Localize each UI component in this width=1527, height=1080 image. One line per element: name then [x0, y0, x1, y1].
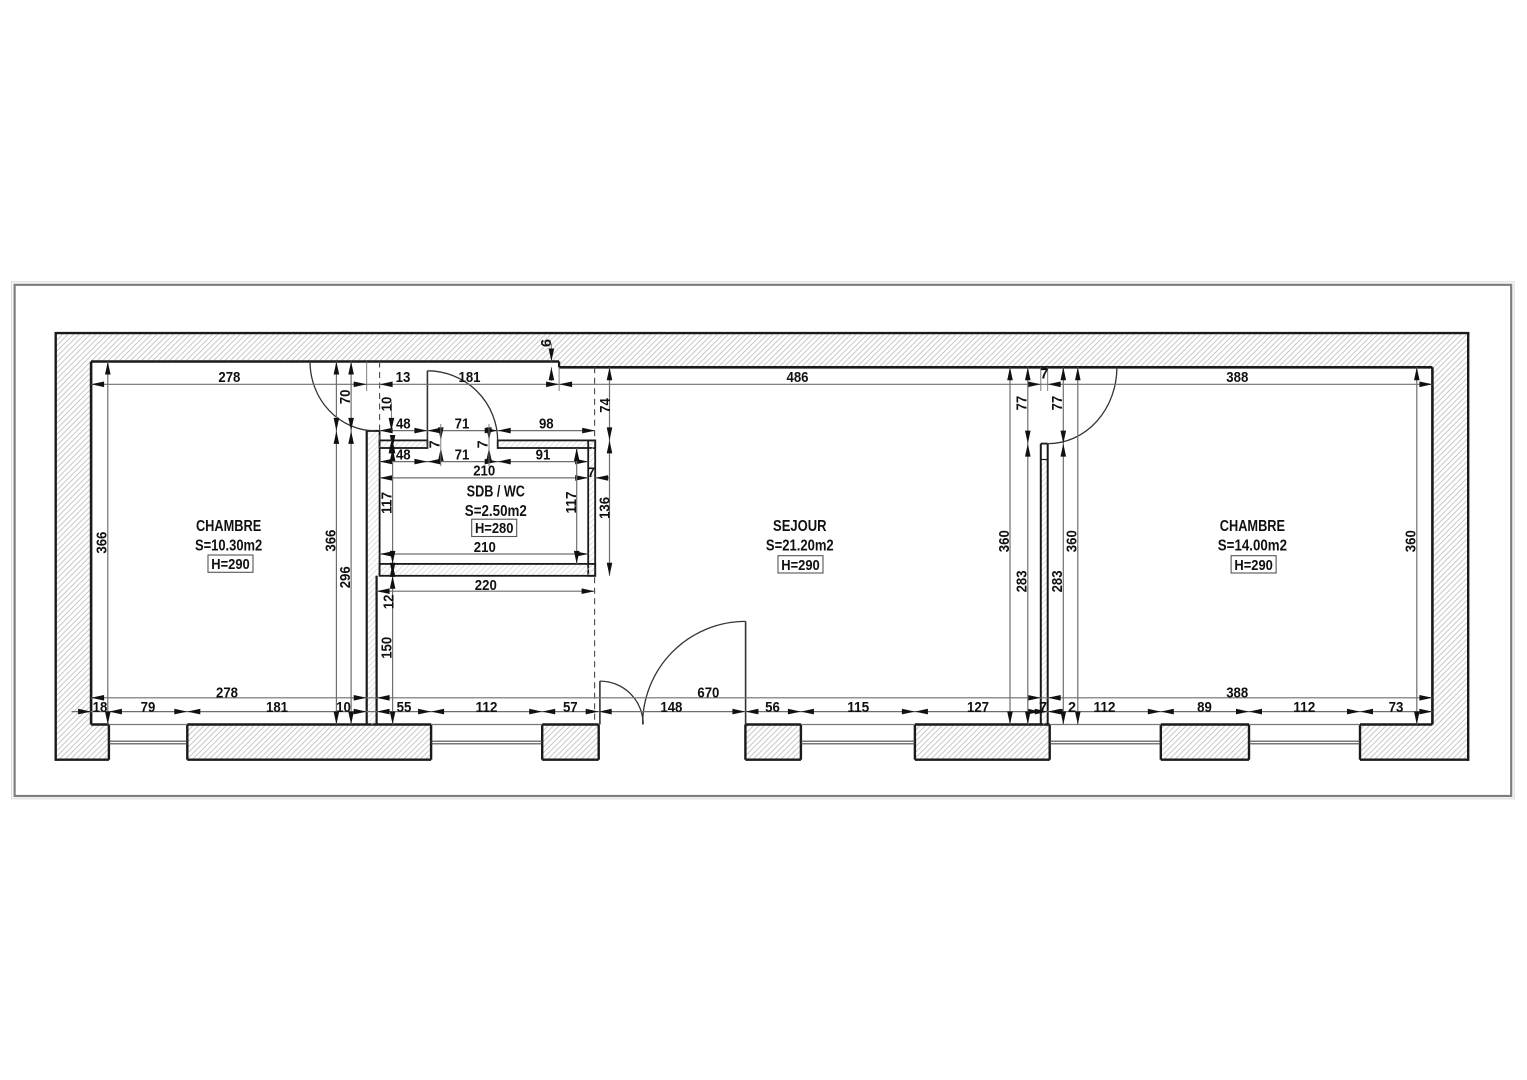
svg-text:SEJOUR: SEJOUR [773, 518, 827, 535]
svg-text:H=280: H=280 [475, 520, 514, 537]
svg-text:7: 7 [588, 465, 596, 480]
svg-text:150: 150 [380, 637, 396, 659]
svg-text:283: 283 [1014, 570, 1030, 592]
svg-text:S=14.00m2: S=14.00m2 [1218, 537, 1287, 554]
svg-text:79: 79 [141, 700, 156, 716]
svg-text:210: 210 [474, 540, 496, 556]
svg-text:7: 7 [428, 440, 444, 448]
svg-text:89: 89 [1197, 700, 1212, 716]
svg-text:98: 98 [539, 416, 554, 432]
svg-text:S=21.20m2: S=21.20m2 [766, 537, 834, 554]
svg-text:H=290: H=290 [781, 557, 820, 574]
svg-text:486: 486 [787, 370, 809, 386]
svg-text:360: 360 [1404, 530, 1420, 552]
svg-text:2: 2 [1068, 700, 1076, 716]
svg-text:H=290: H=290 [211, 556, 250, 573]
svg-text:H=290: H=290 [1234, 557, 1273, 574]
svg-text:7: 7 [1040, 367, 1048, 383]
svg-text:181: 181 [459, 370, 481, 386]
svg-text:388: 388 [1226, 685, 1248, 701]
svg-text:278: 278 [216, 685, 238, 701]
svg-text:210: 210 [473, 464, 495, 480]
svg-text:48: 48 [396, 416, 411, 432]
svg-text:360: 360 [1065, 530, 1081, 552]
svg-text:SDB / WC: SDB / WC [467, 483, 525, 500]
svg-text:7: 7 [476, 440, 492, 448]
svg-text:77: 77 [1015, 396, 1031, 411]
svg-text:74: 74 [598, 398, 614, 413]
svg-text:91: 91 [536, 448, 551, 464]
svg-text:278: 278 [218, 370, 240, 386]
svg-text:12: 12 [382, 594, 398, 609]
svg-text:220: 220 [475, 578, 497, 594]
svg-text:CHAMBRE: CHAMBRE [196, 518, 261, 535]
svg-text:71: 71 [455, 448, 470, 464]
svg-text:S=10.30m2: S=10.30m2 [195, 537, 262, 554]
svg-text:112: 112 [1293, 700, 1315, 716]
svg-text:670: 670 [697, 685, 719, 701]
svg-text:18: 18 [93, 700, 108, 716]
svg-text:127: 127 [967, 700, 989, 716]
svg-text:296: 296 [338, 566, 354, 588]
svg-text:148: 148 [660, 700, 682, 716]
svg-text:366: 366 [323, 530, 339, 552]
svg-text:388: 388 [1226, 370, 1248, 386]
svg-text:360: 360 [997, 530, 1013, 552]
svg-text:57: 57 [563, 700, 578, 716]
svg-text:7: 7 [1039, 700, 1047, 716]
svg-text:117: 117 [564, 492, 580, 514]
svg-text:70: 70 [338, 390, 354, 405]
svg-text:10: 10 [380, 397, 396, 412]
svg-text:71: 71 [455, 416, 470, 432]
svg-text:73: 73 [1389, 700, 1404, 716]
svg-text:117: 117 [380, 492, 396, 514]
svg-text:181: 181 [266, 700, 288, 716]
svg-text:6: 6 [539, 339, 555, 347]
svg-text:48: 48 [396, 448, 411, 464]
svg-text:S=2.50m2: S=2.50m2 [465, 503, 527, 520]
svg-text:366: 366 [94, 532, 110, 554]
svg-text:136: 136 [598, 497, 614, 519]
svg-text:56: 56 [765, 700, 780, 716]
svg-text:283: 283 [1050, 570, 1066, 592]
svg-text:55: 55 [397, 700, 412, 716]
svg-text:CHAMBRE: CHAMBRE [1220, 518, 1285, 535]
svg-text:112: 112 [1094, 700, 1116, 716]
svg-text:112: 112 [476, 700, 498, 716]
svg-text:115: 115 [847, 700, 869, 716]
svg-text:13: 13 [396, 370, 411, 386]
svg-text:77: 77 [1050, 396, 1066, 411]
